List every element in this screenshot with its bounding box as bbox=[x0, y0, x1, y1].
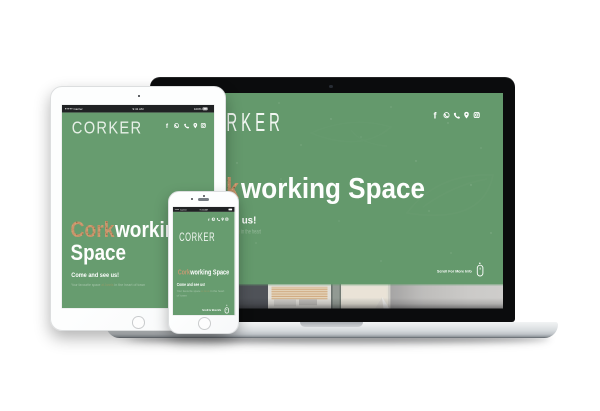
svg-text:Scroll for More Info: Scroll for More Info bbox=[203, 308, 222, 312]
svg-text:Carrier: Carrier bbox=[74, 106, 83, 110]
svg-text:CORKER: CORKER bbox=[72, 119, 143, 137]
svg-text:9:41 AM: 9:41 AM bbox=[132, 106, 144, 110]
svg-text:9:41 AM: 9:41 AM bbox=[200, 208, 208, 211]
svg-text:Your favourite space at Janela: Your favourite space at Janela in the he… bbox=[71, 282, 145, 286]
svg-text:Your favourite space at Janela: Your favourite space at Janela in the he… bbox=[177, 289, 225, 292]
svg-text:Cork: Cork bbox=[178, 269, 190, 276]
svg-text:Scroll For More Info: Scroll For More Info bbox=[437, 269, 472, 274]
svg-text:Space: Space bbox=[71, 240, 127, 265]
svg-text:Carrier: Carrier bbox=[180, 208, 187, 211]
svg-text:100%: 100% bbox=[194, 106, 202, 110]
svg-text:working Space: working Space bbox=[190, 269, 230, 276]
svg-text:CORKER: CORKER bbox=[179, 231, 215, 244]
svg-text:Cork: Cork bbox=[71, 216, 115, 241]
svg-text:Come and see us!: Come and see us! bbox=[71, 273, 119, 279]
svg-text:of town: of town bbox=[177, 294, 188, 297]
svg-text:Come and see us!: Come and see us! bbox=[177, 282, 205, 287]
svg-text:working Space: working Space bbox=[240, 173, 425, 205]
